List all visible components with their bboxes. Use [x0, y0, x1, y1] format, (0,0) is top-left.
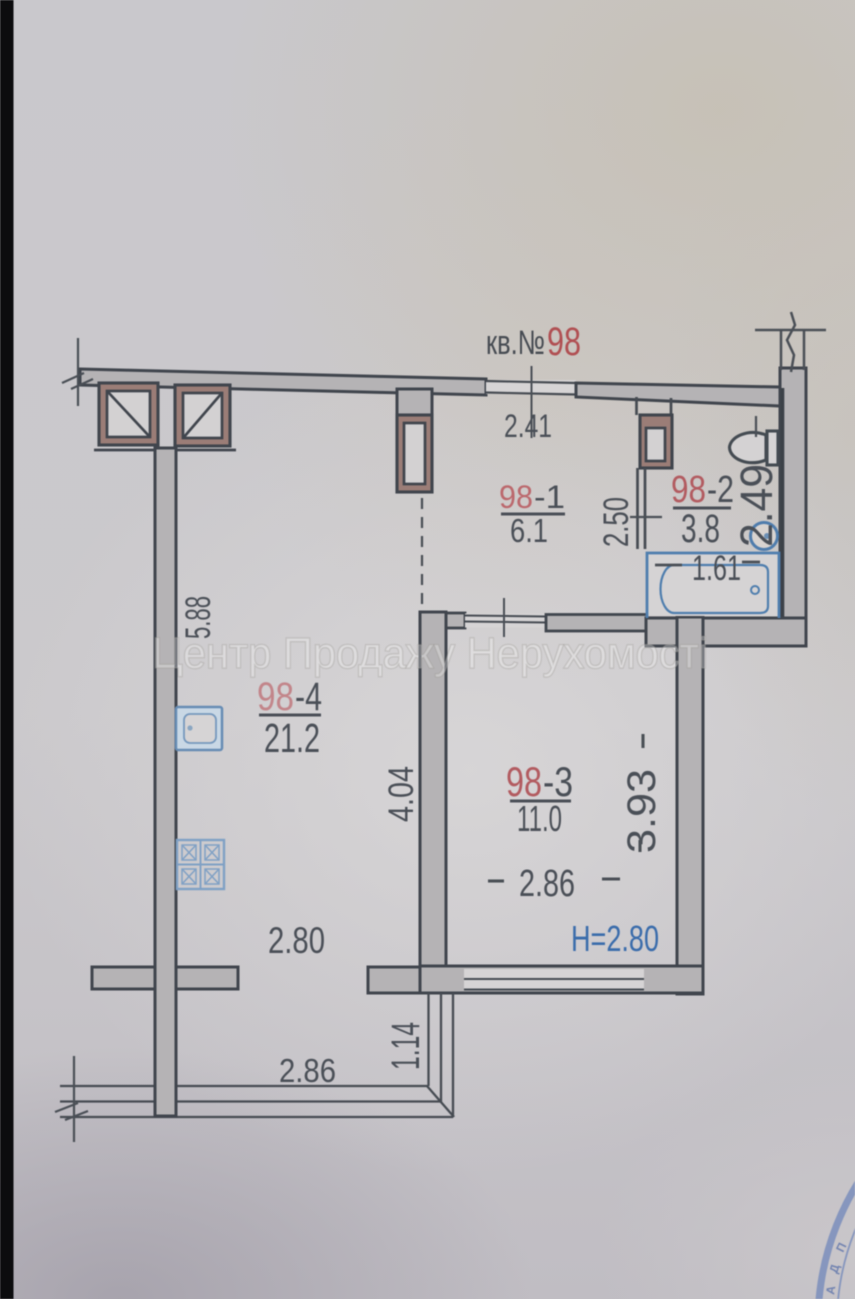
- svg-text:98: 98: [499, 479, 533, 515]
- svg-text:А: А: [823, 1284, 838, 1295]
- svg-text:98: 98: [547, 320, 581, 364]
- svg-text:1.14: 1.14: [384, 1022, 428, 1070]
- svg-text:Д: Д: [826, 1262, 842, 1275]
- svg-text:2.49: 2.49: [731, 464, 782, 547]
- svg-text:3.93: 3.93: [620, 769, 664, 853]
- svg-text:6.1: 6.1: [510, 512, 548, 549]
- svg-text:21.2: 21.2: [264, 715, 320, 761]
- svg-text:11.0: 11.0: [517, 798, 562, 839]
- svg-text:кв.№: кв.№: [486, 324, 545, 362]
- svg-text:2.41: 2.41: [504, 408, 552, 444]
- svg-text:98: 98: [257, 675, 294, 719]
- svg-text:-1: -1: [534, 479, 565, 515]
- svg-text:2.80: 2.80: [268, 920, 325, 961]
- svg-text:H=2.80: H=2.80: [571, 918, 659, 959]
- svg-text:2.86: 2.86: [279, 1052, 336, 1089]
- svg-text:Центр Продажу Нерухомості: Центр Продажу Нерухомості: [152, 629, 708, 678]
- svg-text:3.8: 3.8: [681, 507, 720, 551]
- svg-text:-2: -2: [707, 469, 734, 511]
- svg-text:98: 98: [671, 469, 706, 511]
- svg-text:2.86: 2.86: [519, 863, 575, 905]
- svg-text:4.04: 4.04: [382, 766, 421, 822]
- svg-text:-4: -4: [295, 675, 322, 719]
- svg-text:2.50: 2.50: [597, 497, 636, 547]
- svg-text:1.61: 1.61: [692, 549, 741, 588]
